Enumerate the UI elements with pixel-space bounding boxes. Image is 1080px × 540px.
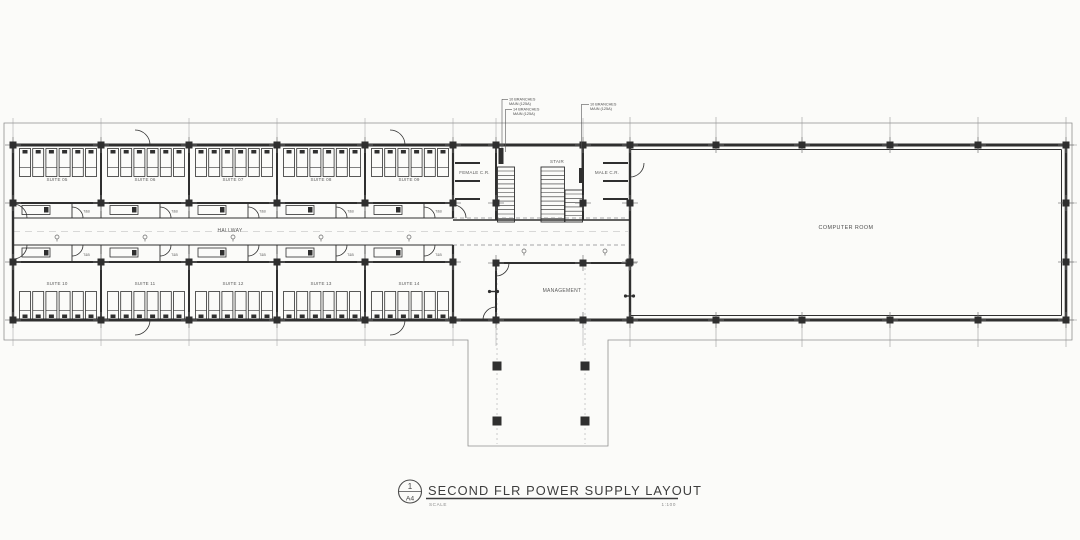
outlet-symbol	[603, 249, 607, 253]
bed-pillow	[150, 150, 155, 154]
bed-pillow	[75, 150, 80, 154]
drawing-sheet: SUITE 05 SUITE 06 SUITE 07 SUITE 08 SUIT…	[0, 0, 1080, 540]
column-marker	[98, 200, 105, 207]
door-arc	[336, 207, 347, 218]
bed-pillow	[326, 150, 331, 154]
bed-pillow	[287, 315, 292, 319]
branch-annotation: MAIN (125A)	[513, 112, 536, 116]
stair-label: STAIR	[550, 159, 564, 164]
column-marker	[580, 317, 587, 324]
door-arc	[248, 245, 259, 256]
wall-device-dot	[624, 294, 627, 297]
column-marker	[493, 142, 500, 149]
column-marker	[274, 142, 281, 149]
suite-label: SUITE 09	[398, 177, 419, 182]
door-arc	[336, 245, 347, 256]
bed-pillow	[212, 150, 217, 154]
bed-pillow	[36, 315, 41, 319]
column-marker	[450, 142, 457, 149]
column-marker	[975, 317, 982, 324]
suite-label: SUITE 06	[134, 177, 155, 182]
column-marker	[1063, 200, 1070, 207]
column-marker	[362, 142, 369, 149]
management-label: MANAGEMENT	[543, 288, 582, 294]
bed-pillow	[388, 315, 393, 319]
bed-pillow	[23, 150, 28, 154]
column-marker	[186, 200, 193, 207]
suite-label: SUITE 10	[46, 281, 67, 286]
column-marker	[450, 317, 457, 324]
lobby-column-marker	[493, 362, 502, 371]
wall-device-dot	[488, 290, 491, 293]
column-marker	[362, 317, 369, 324]
bed-pillow	[199, 150, 204, 154]
column-marker	[887, 142, 894, 149]
outlet-symbol	[407, 235, 411, 239]
dresser-mark	[396, 207, 401, 213]
suite-label: SUITE 13	[310, 281, 331, 286]
column-marker	[450, 259, 457, 266]
column-marker	[274, 200, 281, 207]
outlet-symbol	[143, 235, 147, 239]
tnb-label: T&B	[171, 253, 178, 257]
bed-pillow	[265, 150, 270, 154]
suite-label: SUITE 05	[46, 177, 67, 182]
suite-label: SUITE 11	[135, 281, 156, 286]
column-marker	[887, 317, 894, 324]
floor-plan-svg: SUITE 05 SUITE 06 SUITE 07 SUITE 08 SUIT…	[0, 0, 1080, 540]
dresser-mark	[132, 207, 137, 213]
column-marker	[493, 317, 500, 324]
column-marker	[627, 142, 634, 149]
bed-pillow	[414, 315, 419, 319]
column-marker	[98, 142, 105, 149]
door-arc	[424, 245, 435, 256]
door-arc	[72, 245, 83, 256]
column-marker	[975, 142, 982, 149]
column-marker	[799, 142, 806, 149]
column-marker	[10, 142, 17, 149]
suite-label: SUITE 12	[222, 281, 243, 286]
bed-pillow	[199, 315, 204, 319]
suite-label: SUITE 08	[310, 177, 331, 182]
bed-pillow	[62, 150, 67, 154]
dresser-mark	[308, 207, 313, 213]
bed-pillow	[89, 150, 94, 154]
bed-pillow	[353, 315, 358, 319]
column-marker	[98, 317, 105, 324]
branch-annotation: 10 BRANCHES	[590, 103, 617, 107]
bed-pillow	[326, 315, 331, 319]
tnb-label: T&B	[435, 253, 442, 257]
bed-pillow	[177, 150, 182, 154]
wall-device-dot	[632, 294, 635, 297]
bed-pillow	[137, 315, 142, 319]
door-arc	[160, 207, 171, 218]
bed-pillow	[238, 315, 243, 319]
scale-value: 1:100	[662, 502, 677, 507]
column-marker	[1063, 142, 1070, 149]
bed-pillow	[124, 315, 129, 319]
column-marker	[713, 142, 720, 149]
branch-annotation: MAIN (125A)	[590, 107, 613, 111]
bed-pillow	[265, 315, 270, 319]
outlet-symbol	[55, 235, 59, 239]
dresser-mark	[308, 250, 313, 256]
drawing-title: SECOND FLR POWER SUPPLY LAYOUT	[428, 483, 702, 498]
branch-annotation: 10 BRANCHES	[509, 98, 536, 102]
bed-pillow	[427, 150, 432, 154]
bed-pillow	[375, 315, 380, 319]
bed-pillow	[287, 150, 292, 154]
outlet-symbol	[522, 249, 526, 253]
column-marker	[627, 317, 634, 324]
bed-pillow	[49, 150, 54, 154]
column-marker	[627, 200, 634, 207]
bed-pillow	[49, 315, 54, 319]
bed-pillow	[225, 315, 230, 319]
column-marker	[10, 200, 17, 207]
tnb-label: T&B	[435, 210, 442, 214]
tnb-label: T&B	[347, 253, 354, 257]
dresser-mark	[44, 207, 49, 213]
bed-pillow	[300, 150, 305, 154]
hallway-label: HALLWAY	[217, 228, 242, 234]
tnb-label: T&B	[259, 210, 266, 214]
column-marker	[186, 142, 193, 149]
door-arc	[424, 207, 435, 218]
tnb-label: T&B	[83, 210, 90, 214]
bed-pillow	[62, 315, 67, 319]
female-cr-label: FEMALE C.R.	[459, 170, 489, 175]
scale-label: SCALE	[429, 502, 447, 507]
door-arc	[160, 245, 171, 256]
bed-pillow	[388, 150, 393, 154]
bed-pillow	[441, 315, 446, 319]
bed-pillow	[401, 315, 406, 319]
lobby-column-marker	[581, 362, 590, 371]
bed-pillow	[441, 150, 446, 154]
bed-pillow	[339, 150, 344, 154]
column-marker	[580, 260, 587, 267]
bed-pillow	[300, 315, 305, 319]
bed-pillow	[111, 150, 116, 154]
door-arc	[135, 130, 150, 145]
male-cr-label: MALE C.R.	[595, 170, 619, 175]
bed-pillow	[23, 315, 28, 319]
panel-board	[499, 148, 504, 164]
bed-pillow	[375, 150, 380, 154]
column-marker	[493, 260, 500, 267]
door-arc	[72, 207, 83, 218]
tnb-label: T&B	[171, 210, 178, 214]
detail-number: 1	[408, 482, 413, 491]
tnb-label: T&B	[259, 253, 266, 257]
column-marker	[627, 259, 634, 266]
bed-pillow	[111, 315, 116, 319]
bed-pillow	[414, 150, 419, 154]
structural-columns	[5, 137, 1074, 426]
column-marker	[450, 200, 457, 207]
column-marker	[799, 317, 806, 324]
column-marker	[98, 259, 105, 266]
column-marker	[580, 200, 587, 207]
door-arc	[630, 163, 644, 177]
bed-pillow	[75, 315, 80, 319]
branch-annotation: MAIN (125A)	[509, 102, 532, 106]
column-marker	[10, 317, 17, 324]
computer-room-label: COMPUTER ROOM	[819, 225, 874, 231]
bed-pillow	[238, 150, 243, 154]
sheet-number: A4	[406, 496, 415, 503]
door-arc	[390, 130, 405, 145]
bed-pillow	[401, 150, 406, 154]
grid-lines	[13, 117, 1077, 444]
bed-pillow	[427, 315, 432, 319]
column-marker	[362, 200, 369, 207]
column-marker	[186, 317, 193, 324]
door-arc	[248, 207, 259, 218]
column-marker	[186, 259, 193, 266]
bed-pillow	[36, 150, 41, 154]
column-marker	[1063, 259, 1070, 266]
bed-pillow	[225, 150, 230, 154]
dresser-mark	[220, 207, 225, 213]
branch-annotation: 14 BRANCHES	[513, 108, 540, 112]
bed-pillow	[89, 315, 94, 319]
bed-pillow	[339, 315, 344, 319]
door-arc	[135, 320, 150, 335]
bed-pillow	[212, 315, 217, 319]
column-marker	[274, 259, 281, 266]
bed-pillow	[251, 315, 256, 319]
bed-pillow	[313, 315, 318, 319]
tnb-label: T&B	[347, 210, 354, 214]
bed-pillow	[137, 150, 142, 154]
door-arc	[453, 205, 466, 218]
suite-label: SUITE 14	[398, 281, 419, 286]
bed-pillow	[313, 150, 318, 154]
dresser-mark	[220, 250, 225, 256]
column-marker	[493, 200, 500, 207]
dresser-mark	[396, 250, 401, 256]
bed-pillow	[124, 150, 129, 154]
bed-pillow	[353, 150, 358, 154]
outlet-symbol	[319, 235, 323, 239]
bed-pillow	[150, 315, 155, 319]
tnb-label: T&B	[83, 253, 90, 257]
column-marker	[274, 317, 281, 324]
room-labels: SUITE 05 SUITE 06 SUITE 07 SUITE 08 SUIT…	[46, 159, 873, 294]
door-arc	[390, 320, 405, 335]
column-marker	[580, 142, 587, 149]
bed-pillow	[251, 150, 256, 154]
lobby-column-marker	[493, 417, 502, 426]
column-marker	[10, 259, 17, 266]
lobby-column-marker	[581, 417, 590, 426]
suite-label: SUITE 07	[222, 177, 243, 182]
column-marker	[1063, 317, 1070, 324]
bed-pillow	[163, 315, 168, 319]
bed-pillow	[163, 150, 168, 154]
roof-eave-outline	[4, 123, 1072, 446]
furniture	[20, 149, 449, 320]
title-block: 1 A4 SECOND FLR POWER SUPPLY LAYOUT SCAL…	[399, 480, 703, 507]
column-marker	[362, 259, 369, 266]
dresser-mark	[44, 250, 49, 256]
bed-pillow	[177, 315, 182, 319]
wall-device-dot	[496, 290, 499, 293]
dresser-mark	[132, 250, 137, 256]
eave-line	[4, 123, 1072, 446]
outlet-symbol	[231, 235, 235, 239]
panel-board	[579, 168, 584, 183]
column-marker	[713, 317, 720, 324]
